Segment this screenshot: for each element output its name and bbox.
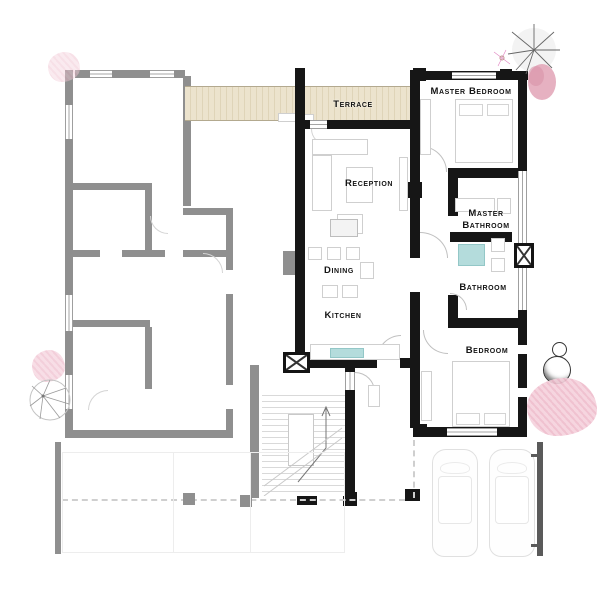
door-arc <box>150 216 168 234</box>
window <box>447 428 497 436</box>
toilet <box>491 238 505 252</box>
door-opening <box>226 385 233 409</box>
wall <box>410 70 420 258</box>
flower-icon <box>48 52 80 82</box>
floor-plan: Terrace Master Bedroom Reception Master … <box>0 0 604 605</box>
door-opening <box>100 250 122 257</box>
window <box>518 268 527 310</box>
garage-wall <box>537 442 543 556</box>
window <box>518 345 527 354</box>
room-label-bedroom: Bedroom <box>466 345 509 357</box>
room-label-bathroom: Bathroom <box>459 282 506 294</box>
room-label-kitchen: Kitchen <box>324 310 361 322</box>
stone-circle-icon <box>552 342 567 357</box>
window <box>90 70 112 78</box>
room-label-master-bathroom: Master Bathroom <box>462 208 509 232</box>
wall <box>518 310 527 432</box>
wall-pier <box>413 424 427 437</box>
dining-chair <box>327 247 341 260</box>
car-icon <box>432 449 478 557</box>
door-arc <box>450 293 467 310</box>
door-opening <box>165 250 183 257</box>
wall <box>448 168 527 178</box>
wall <box>145 327 152 389</box>
room-label-dining: Dining <box>324 265 354 277</box>
shaft-x-icon <box>283 352 310 373</box>
pillow <box>487 104 509 116</box>
wall <box>400 358 417 368</box>
wall <box>295 68 305 354</box>
dining-chair <box>360 262 374 279</box>
wall <box>448 318 527 328</box>
sofa <box>312 139 368 155</box>
room-label-reception: Reception <box>345 178 393 190</box>
door-opening <box>310 120 327 129</box>
tv-unit <box>399 157 408 211</box>
wall-tick <box>531 544 537 547</box>
closet <box>420 99 431 155</box>
site-boundary-dashed <box>413 440 415 498</box>
hall-cabinet <box>368 385 380 407</box>
room-label-master-bedroom: Master Bedroom <box>430 86 511 98</box>
wall <box>73 183 151 190</box>
patio-divider <box>250 452 251 553</box>
room-label-terrace: Terrace <box>333 99 373 111</box>
toilet <box>491 258 505 272</box>
car-icon <box>489 449 535 557</box>
flower-icon <box>527 378 597 436</box>
sofa <box>312 155 332 211</box>
room-label-line: Bathroom <box>462 220 509 232</box>
pillow <box>484 413 506 425</box>
window-x-icon <box>514 243 534 268</box>
dining-chair <box>342 285 358 298</box>
wall-pier <box>413 68 426 81</box>
cabinet <box>330 219 358 237</box>
window <box>452 72 496 79</box>
wall-pier <box>408 182 422 198</box>
tree-icon <box>26 378 72 422</box>
patio-divider <box>173 452 174 553</box>
kitchen-sink <box>330 348 364 358</box>
door-arc <box>420 232 448 258</box>
wall <box>345 390 355 498</box>
wall <box>65 430 233 438</box>
door-opening <box>345 372 355 390</box>
dining-chair <box>346 247 360 260</box>
door-opening <box>226 270 233 294</box>
closet <box>421 371 432 421</box>
bathroom-sink <box>458 244 485 266</box>
window <box>150 70 174 78</box>
window <box>518 171 527 243</box>
window <box>518 388 527 397</box>
room-label-line: Master <box>462 208 509 220</box>
wall-pier <box>345 362 355 372</box>
window <box>65 295 73 331</box>
door-arc <box>88 390 108 410</box>
terrace-table <box>278 113 296 122</box>
wall <box>73 320 150 327</box>
door-arc <box>423 330 448 354</box>
patio-outline <box>62 452 345 553</box>
dining-chair <box>308 247 322 260</box>
wall-tick <box>531 454 537 457</box>
pillow <box>456 413 480 425</box>
window <box>65 105 73 139</box>
dining-chair <box>322 285 338 298</box>
pillow <box>459 104 483 116</box>
wall-pier <box>283 251 295 275</box>
wall <box>55 442 61 554</box>
